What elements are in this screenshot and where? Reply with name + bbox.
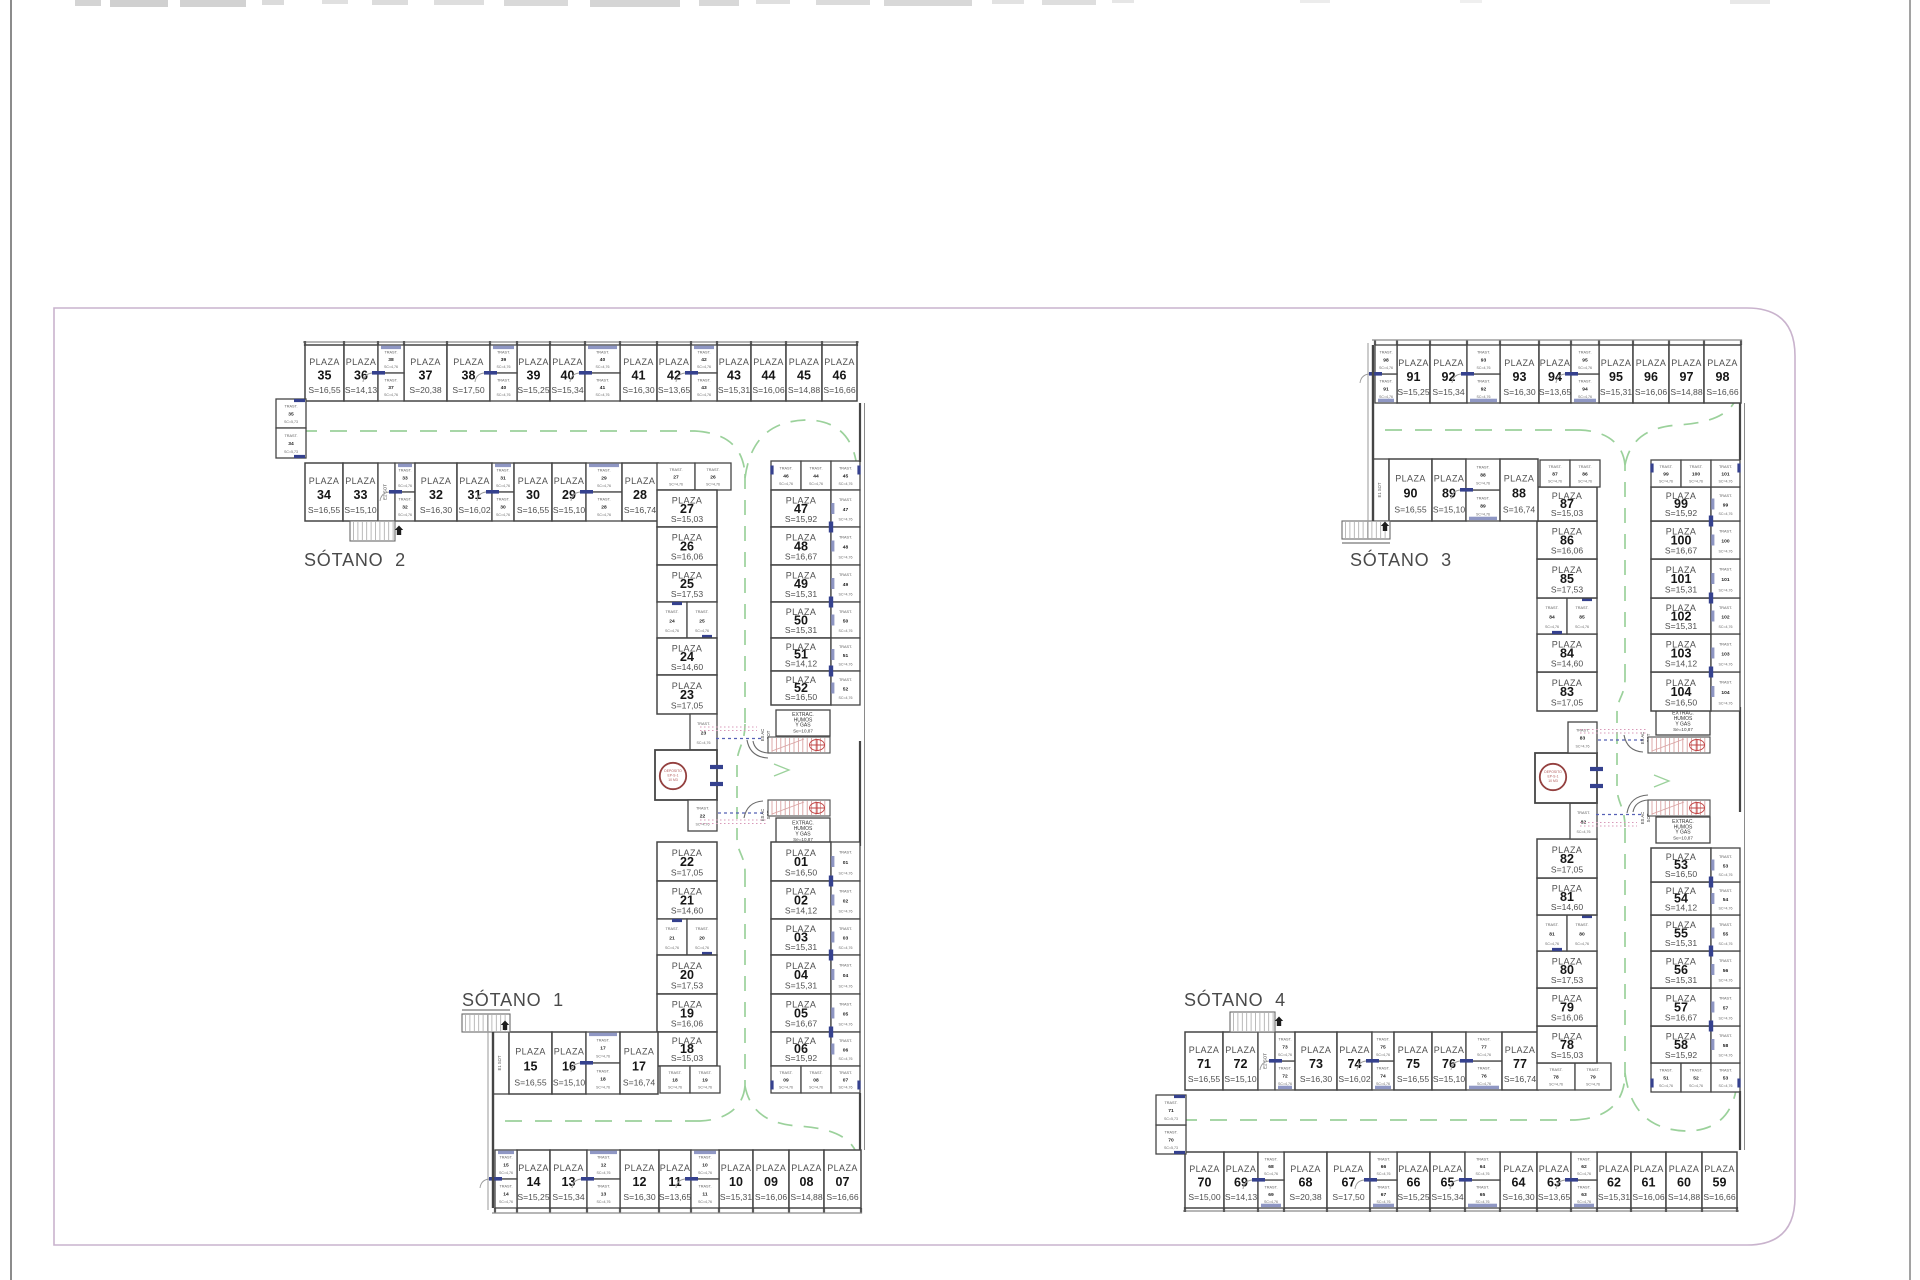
svg-text:TRAST.: TRAST. bbox=[1719, 606, 1732, 610]
svg-text:S=14,12: S=14,12 bbox=[1665, 659, 1697, 669]
svg-text:29: 29 bbox=[601, 476, 607, 482]
svg-text:PLAZA: PLAZA bbox=[1433, 358, 1464, 368]
svg-text:64: 64 bbox=[1480, 1164, 1486, 1170]
svg-text:PLAZA: PLAZA bbox=[824, 357, 855, 367]
svg-text:PLAZA: PLAZA bbox=[1704, 1164, 1735, 1174]
svg-text:SC=4,76: SC=4,76 bbox=[1376, 1200, 1390, 1204]
svg-text:38: 38 bbox=[388, 357, 394, 363]
svg-text:TRAST.: TRAST. bbox=[1719, 959, 1732, 963]
svg-text:S=16,66: S=16,66 bbox=[1703, 1192, 1735, 1202]
svg-text:PLAZA: PLAZA bbox=[515, 1046, 546, 1056]
svg-text:TRAST.: TRAST. bbox=[1575, 923, 1588, 927]
svg-text:TRAST.: TRAST. bbox=[384, 378, 397, 382]
svg-text:88: 88 bbox=[1512, 486, 1526, 500]
svg-text:13: 13 bbox=[601, 1192, 607, 1198]
svg-text:TRAST.: TRAST. bbox=[1719, 1034, 1732, 1038]
svg-text:44: 44 bbox=[813, 474, 819, 480]
svg-text:TRAST.: TRAST. bbox=[1719, 855, 1732, 859]
svg-text:S=16,50: S=16,50 bbox=[1665, 869, 1697, 879]
svg-text:PLAZA: PLAZA bbox=[1707, 358, 1738, 368]
svg-text:TRAST.: TRAST. bbox=[1578, 351, 1591, 355]
svg-text:86: 86 bbox=[1582, 471, 1588, 477]
svg-text:49: 49 bbox=[843, 582, 849, 588]
svg-text:S=14,12: S=14,12 bbox=[1665, 902, 1697, 912]
svg-text:S=16,30: S=16,30 bbox=[622, 385, 654, 395]
svg-text:PLAZA: PLAZA bbox=[309, 476, 340, 486]
svg-text:TRAST.: TRAST. bbox=[398, 469, 411, 473]
svg-text:S=16,06: S=16,06 bbox=[1551, 1013, 1583, 1023]
svg-text:TRAST.: TRAST. bbox=[1719, 1069, 1732, 1073]
svg-text:S=15,31: S=15,31 bbox=[1665, 938, 1697, 948]
svg-text:SC=4,76: SC=4,76 bbox=[838, 946, 852, 950]
svg-text:SC=4,76: SC=4,76 bbox=[665, 629, 679, 633]
svg-text:S=15,31: S=15,31 bbox=[1598, 1192, 1630, 1202]
svg-text:S=15,34: S=15,34 bbox=[1431, 1192, 1463, 1202]
svg-text:PLAZA: PLAZA bbox=[346, 357, 377, 367]
svg-text:S=15,25: S=15,25 bbox=[517, 1192, 549, 1202]
svg-text:SC=4,76: SC=4,76 bbox=[1718, 588, 1732, 592]
svg-text:PLAZA: PLAZA bbox=[1669, 1164, 1700, 1174]
svg-text:S=16,30: S=16,30 bbox=[623, 1192, 655, 1202]
svg-text:S=14,60: S=14,60 bbox=[671, 906, 703, 916]
svg-text:SC=4,76: SC=4,76 bbox=[1578, 479, 1592, 483]
svg-text:63: 63 bbox=[1581, 1192, 1587, 1198]
svg-text:TRAST.: TRAST. bbox=[596, 378, 609, 382]
svg-text:TRAST.: TRAST. bbox=[384, 350, 397, 354]
svg-text:E1 SOT: E1 SOT bbox=[1377, 482, 1382, 497]
svg-text:25: 25 bbox=[699, 619, 705, 625]
svg-text:PLAZA: PLAZA bbox=[1339, 1045, 1370, 1055]
svg-text:103: 103 bbox=[1721, 652, 1729, 658]
svg-text:SC=4,76: SC=4,76 bbox=[1475, 1200, 1489, 1204]
svg-text:SC=4,76: SC=4,76 bbox=[1549, 1082, 1563, 1086]
svg-text:18: 18 bbox=[672, 1077, 678, 1083]
svg-text:SC=4,76: SC=4,76 bbox=[1379, 395, 1393, 399]
svg-text:10: 10 bbox=[702, 1163, 708, 1169]
svg-text:SC=4,76: SC=4,76 bbox=[1575, 745, 1589, 749]
svg-text:S=15,31: S=15,31 bbox=[785, 981, 817, 991]
svg-text:SC=4,76: SC=4,76 bbox=[838, 482, 852, 486]
svg-text:09: 09 bbox=[783, 1077, 789, 1083]
svg-text:98: 98 bbox=[1383, 358, 1389, 364]
svg-text:S=16,06: S=16,06 bbox=[755, 1192, 787, 1202]
svg-text:32: 32 bbox=[429, 488, 443, 502]
svg-text:PLAZA: PLAZA bbox=[827, 1163, 858, 1173]
svg-text:S=16,30: S=16,30 bbox=[1503, 387, 1535, 397]
svg-text:TRAST.: TRAST. bbox=[1719, 996, 1732, 1000]
svg-text:TRAST.: TRAST. bbox=[496, 498, 509, 502]
svg-text:07: 07 bbox=[843, 1077, 849, 1083]
svg-text:S=16,74: S=16,74 bbox=[1503, 504, 1535, 514]
svg-text:PLAZA: PLAZA bbox=[554, 1046, 585, 1056]
svg-text:SC=4,76: SC=4,76 bbox=[596, 1200, 610, 1204]
svg-text:SC=4,76: SC=4,76 bbox=[398, 513, 412, 517]
svg-text:PLAZA: PLAZA bbox=[719, 357, 750, 367]
svg-text:52: 52 bbox=[1693, 1076, 1699, 1082]
svg-text:TRAST.: TRAST. bbox=[697, 378, 710, 382]
svg-text:S=16,55: S=16,55 bbox=[1188, 1074, 1220, 1084]
svg-text:SC=4,76: SC=4,76 bbox=[838, 662, 852, 666]
svg-text:S=16,06: S=16,06 bbox=[671, 1019, 703, 1029]
svg-text:93: 93 bbox=[1513, 370, 1527, 384]
svg-text:18: 18 bbox=[600, 1077, 606, 1083]
svg-text:TRAST.: TRAST. bbox=[1477, 1038, 1490, 1042]
svg-text:TRAST.: TRAST. bbox=[695, 610, 708, 614]
svg-text:71: 71 bbox=[1168, 1108, 1174, 1114]
svg-text:SC=4,76: SC=4,76 bbox=[697, 365, 711, 369]
svg-text:100: 100 bbox=[1721, 539, 1729, 545]
svg-text:SC=5,73: SC=5,73 bbox=[1164, 1117, 1178, 1121]
svg-text:SÓTANO 3: SÓTANO 3 bbox=[1350, 549, 1452, 570]
svg-text:E1 SOT: E1 SOT bbox=[497, 1055, 502, 1070]
svg-text:TRAST.: TRAST. bbox=[1719, 923, 1732, 927]
svg-text:PLAZA: PLAZA bbox=[1398, 358, 1429, 368]
svg-text:S=17,05: S=17,05 bbox=[1551, 698, 1583, 708]
svg-text:TRAST.: TRAST. bbox=[1586, 1068, 1599, 1072]
svg-text:TRAST.: TRAST. bbox=[1477, 351, 1490, 355]
svg-text:TRAST.: TRAST. bbox=[1719, 494, 1732, 498]
svg-text:TRAST.: TRAST. bbox=[839, 498, 852, 502]
svg-text:SC=5,73: SC=5,73 bbox=[1164, 1146, 1178, 1150]
svg-text:TRAST.: TRAST. bbox=[1264, 1157, 1277, 1161]
svg-text:SC=4,76: SC=4,76 bbox=[1577, 1200, 1591, 1204]
svg-text:S=15,31: S=15,31 bbox=[1665, 621, 1697, 631]
svg-text:S=16,06: S=16,06 bbox=[1632, 1192, 1664, 1202]
svg-text:34: 34 bbox=[288, 441, 294, 447]
svg-text:95: 95 bbox=[1582, 358, 1588, 364]
svg-text:TRAST.: TRAST. bbox=[284, 434, 297, 438]
svg-text:TRAST.: TRAST. bbox=[1264, 1185, 1277, 1189]
svg-text:37: 37 bbox=[388, 385, 394, 391]
svg-text:SC=4,76: SC=4,76 bbox=[706, 482, 720, 486]
svg-text:PLAZA: PLAZA bbox=[721, 1163, 752, 1173]
svg-text:S=16,74: S=16,74 bbox=[623, 1077, 655, 1087]
svg-text:TRAST.: TRAST. bbox=[1379, 351, 1392, 355]
svg-text:SC=4,76: SC=4,76 bbox=[1718, 625, 1732, 629]
svg-text:82: 82 bbox=[1581, 820, 1587, 826]
svg-text:TRAST.: TRAST. bbox=[839, 678, 852, 682]
svg-text:S=13,65: S=13,65 bbox=[659, 1192, 691, 1202]
svg-text:95: 95 bbox=[1609, 370, 1623, 384]
svg-text:85: 85 bbox=[1579, 615, 1585, 621]
svg-text:S=15,10: S=15,10 bbox=[1224, 1074, 1256, 1084]
svg-text:TRAST.: TRAST. bbox=[596, 1069, 609, 1073]
svg-text:S=17,05: S=17,05 bbox=[671, 868, 703, 878]
svg-text:S=16,06: S=16,06 bbox=[1635, 387, 1667, 397]
svg-text:TRAST.: TRAST. bbox=[1476, 1157, 1489, 1161]
svg-text:50: 50 bbox=[843, 619, 849, 625]
svg-text:06: 06 bbox=[843, 1047, 849, 1053]
svg-text:PLAZA: PLAZA bbox=[554, 476, 585, 486]
svg-text:101: 101 bbox=[1721, 577, 1729, 583]
svg-text:72: 72 bbox=[1234, 1057, 1248, 1071]
svg-text:TRAST.: TRAST. bbox=[669, 468, 682, 472]
svg-text:TRAST.: TRAST. bbox=[779, 467, 792, 471]
svg-text:TRAST.: TRAST. bbox=[839, 573, 852, 577]
svg-text:PLAZA: PLAZA bbox=[1333, 1164, 1364, 1174]
svg-text:TRAST.: TRAST. bbox=[1278, 1067, 1291, 1071]
svg-text:SC=4,76: SC=4,76 bbox=[698, 1171, 712, 1175]
svg-text:TRAST.: TRAST. bbox=[1476, 465, 1489, 469]
svg-text:S=15,03: S=15,03 bbox=[1551, 1050, 1583, 1060]
svg-text:TRAST.: TRAST. bbox=[696, 806, 709, 810]
svg-text:S=15,10: S=15,10 bbox=[1433, 504, 1465, 514]
svg-text:99: 99 bbox=[1663, 471, 1669, 477]
svg-text:S=16,55: S=16,55 bbox=[1394, 504, 1426, 514]
svg-text:28: 28 bbox=[601, 505, 607, 511]
svg-text:S=15,34: S=15,34 bbox=[551, 385, 583, 395]
svg-text:SC=4,76: SC=4,76 bbox=[595, 393, 609, 397]
svg-text:S=20,38: S=20,38 bbox=[409, 385, 441, 395]
svg-text:41: 41 bbox=[632, 369, 646, 383]
svg-text:PLAZA: PLAZA bbox=[459, 476, 490, 486]
svg-text:67: 67 bbox=[1342, 1176, 1356, 1190]
svg-text:ES AC: ES AC bbox=[1640, 732, 1645, 744]
svg-text:PLAZA: PLAZA bbox=[1503, 1164, 1534, 1174]
svg-text:SC=4,76: SC=4,76 bbox=[1718, 906, 1732, 910]
svg-text:16: 16 bbox=[562, 1059, 576, 1073]
svg-text:S=16,55: S=16,55 bbox=[308, 385, 340, 395]
svg-text:31: 31 bbox=[500, 476, 506, 482]
svg-text:TRAST.: TRAST. bbox=[1379, 380, 1392, 384]
svg-text:SC=4,76: SC=4,76 bbox=[1477, 1082, 1491, 1086]
svg-text:79: 79 bbox=[1590, 1074, 1596, 1080]
svg-text:S=16,06: S=16,06 bbox=[671, 552, 703, 562]
svg-text:75: 75 bbox=[1406, 1057, 1420, 1071]
svg-text:S=15,31: S=15,31 bbox=[785, 942, 817, 952]
svg-text:SC=4,76: SC=4,76 bbox=[1718, 873, 1732, 877]
svg-text:TRAST.: TRAST. bbox=[1577, 1157, 1590, 1161]
svg-text:SC=4,76: SC=4,76 bbox=[698, 1085, 712, 1089]
svg-text:94: 94 bbox=[1582, 387, 1588, 393]
svg-text:PLAZA: PLAZA bbox=[345, 476, 376, 486]
svg-text:SC=4,76: SC=4,76 bbox=[838, 1085, 852, 1089]
svg-text:35: 35 bbox=[318, 369, 332, 383]
svg-text:PLAZA: PLAZA bbox=[660, 1163, 691, 1173]
svg-text:73: 73 bbox=[1282, 1045, 1288, 1051]
svg-text:SC=4,76: SC=4,76 bbox=[1718, 512, 1732, 516]
svg-text:TRAST.: TRAST. bbox=[839, 645, 852, 649]
svg-text:TRAST.: TRAST. bbox=[597, 1185, 610, 1189]
svg-text:TRAST.: TRAST. bbox=[1164, 1131, 1177, 1135]
svg-text:S=16,74: S=16,74 bbox=[1504, 1074, 1536, 1084]
svg-text:SC=4,76: SC=4,76 bbox=[1576, 830, 1590, 834]
svg-text:PLAZA: PLAZA bbox=[518, 476, 549, 486]
svg-text:44: 44 bbox=[762, 369, 776, 383]
svg-text:SC=4,76: SC=4,76 bbox=[398, 484, 412, 488]
svg-text:PLAZA: PLAZA bbox=[789, 357, 820, 367]
svg-text:05: 05 bbox=[843, 1012, 849, 1018]
svg-text:S=17,50: S=17,50 bbox=[1332, 1192, 1364, 1202]
svg-text:35: 35 bbox=[288, 412, 294, 418]
svg-text:S=15,31: S=15,31 bbox=[718, 385, 750, 395]
svg-text:S=15,00: S=15,00 bbox=[1188, 1192, 1220, 1202]
svg-text:68: 68 bbox=[1299, 1176, 1313, 1190]
svg-text:DEPOSITO: DEPOSITO bbox=[664, 769, 682, 773]
svg-text:83: 83 bbox=[1580, 736, 1586, 742]
svg-text:S=15,92: S=15,92 bbox=[785, 1053, 817, 1063]
svg-text:SC=4,76: SC=4,76 bbox=[1718, 701, 1732, 705]
svg-text:PLAZA: PLAZA bbox=[625, 476, 656, 486]
svg-text:SC=4,76: SC=4,76 bbox=[596, 1086, 610, 1090]
svg-text:PLAZA: PLAZA bbox=[1395, 473, 1426, 483]
svg-text:TRAST.: TRAST. bbox=[597, 469, 610, 473]
svg-text:TRAST.: TRAST. bbox=[839, 1071, 852, 1075]
svg-text:SC=4,76: SC=4,76 bbox=[838, 1023, 852, 1027]
svg-text:S=14,60: S=14,60 bbox=[671, 662, 703, 672]
svg-text:S=14,88: S=14,88 bbox=[788, 385, 820, 395]
svg-text:48: 48 bbox=[843, 545, 849, 551]
svg-text:TRAST.: TRAST. bbox=[1278, 1038, 1291, 1042]
svg-text:S=16,06: S=16,06 bbox=[1551, 546, 1583, 556]
svg-text:S=15,25: S=15,25 bbox=[1397, 387, 1429, 397]
svg-text:27: 27 bbox=[673, 474, 679, 480]
svg-text:S=15,10: S=15,10 bbox=[1433, 1074, 1465, 1084]
svg-text:54: 54 bbox=[1723, 897, 1729, 903]
svg-text:S=17,50: S=17,50 bbox=[452, 385, 484, 395]
svg-text:SC=4,76: SC=4,76 bbox=[838, 556, 852, 560]
svg-text:S=16,50: S=16,50 bbox=[785, 868, 817, 878]
svg-text:S=16,66: S=16,66 bbox=[823, 385, 855, 395]
svg-text:26: 26 bbox=[710, 474, 716, 480]
svg-text:S=16,55: S=16,55 bbox=[514, 1077, 546, 1087]
svg-text:PLAZA: PLAZA bbox=[1599, 1164, 1630, 1174]
svg-text:TRAST.: TRAST. bbox=[497, 378, 510, 382]
svg-text:S=16,02: S=16,02 bbox=[1338, 1074, 1370, 1084]
svg-text:PLAZA: PLAZA bbox=[659, 357, 690, 367]
svg-text:SC=4,76: SC=4,76 bbox=[779, 1085, 793, 1089]
svg-text:SC=4,76: SC=4,76 bbox=[1578, 395, 1592, 399]
svg-text:TRAST.: TRAST. bbox=[1578, 465, 1591, 469]
svg-text:Se=10,87: Se=10,87 bbox=[1673, 727, 1693, 732]
svg-text:TRAST.: TRAST. bbox=[697, 350, 710, 354]
svg-text:SC=4,76: SC=4,76 bbox=[1278, 1053, 1292, 1057]
svg-text:SC=4,76: SC=4,76 bbox=[809, 1085, 823, 1089]
svg-text:PLAZA: PLAZA bbox=[1434, 1045, 1465, 1055]
svg-text:TRAST.: TRAST. bbox=[1476, 1185, 1489, 1189]
svg-text:TRAST.: TRAST. bbox=[1549, 1068, 1562, 1072]
svg-text:S=17,53: S=17,53 bbox=[1551, 585, 1583, 595]
svg-text:S=14,88: S=14,88 bbox=[1670, 387, 1702, 397]
svg-text:TRAST.: TRAST. bbox=[1577, 1185, 1590, 1189]
svg-text:SC=4,76: SC=4,76 bbox=[597, 513, 611, 517]
svg-text:S=15,92: S=15,92 bbox=[1665, 1050, 1697, 1060]
svg-text:74: 74 bbox=[1380, 1074, 1386, 1080]
svg-text:10 M3: 10 M3 bbox=[668, 778, 678, 782]
svg-text:SC=4,76: SC=4,76 bbox=[1545, 942, 1559, 946]
svg-text:SC=4,76: SC=4,76 bbox=[1718, 1054, 1732, 1058]
svg-text:S=17,05: S=17,05 bbox=[671, 701, 703, 711]
svg-text:PLAZA: PLAZA bbox=[1633, 1164, 1664, 1174]
svg-text:PLAZA: PLAZA bbox=[1540, 358, 1571, 368]
svg-text:93: 93 bbox=[1481, 358, 1487, 364]
svg-text:39: 39 bbox=[527, 369, 541, 383]
svg-text:SC=4,76: SC=4,76 bbox=[1264, 1172, 1278, 1176]
svg-text:PLAZA: PLAZA bbox=[624, 1046, 655, 1056]
svg-text:TRAST.: TRAST. bbox=[1575, 606, 1588, 610]
svg-text:PLAZA: PLAZA bbox=[553, 1163, 584, 1173]
svg-text:SC=4,76: SC=4,76 bbox=[1718, 1084, 1732, 1088]
svg-text:S=16,55: S=16,55 bbox=[308, 505, 340, 515]
svg-text:PLAZA: PLAZA bbox=[518, 357, 549, 367]
svg-text:TRAST.: TRAST. bbox=[698, 1156, 711, 1160]
svg-text:89: 89 bbox=[1480, 504, 1486, 510]
svg-text:S=16,50: S=16,50 bbox=[1665, 698, 1697, 708]
svg-text:TRAST.: TRAST. bbox=[596, 1038, 609, 1042]
svg-text:SC=4,76: SC=4,76 bbox=[809, 482, 823, 486]
svg-text:04: 04 bbox=[843, 973, 849, 979]
svg-text:PLAZA: PLAZA bbox=[410, 357, 441, 367]
svg-text:ES AC: ES AC bbox=[1640, 812, 1645, 824]
svg-text:S=14,60: S=14,60 bbox=[1551, 659, 1583, 669]
svg-text:TRAST.: TRAST. bbox=[1376, 1038, 1389, 1042]
svg-text:EP-S-1: EP-S-1 bbox=[668, 774, 679, 778]
svg-text:TRAST.: TRAST. bbox=[499, 1185, 512, 1189]
svg-text:S=13,65: S=13,65 bbox=[658, 385, 690, 395]
svg-text:ES AC: ES AC bbox=[760, 729, 765, 741]
svg-text:SC=4,76: SC=4,76 bbox=[838, 629, 852, 633]
svg-text:S=16,67: S=16,67 bbox=[785, 552, 817, 562]
svg-text:S=16,66: S=16,66 bbox=[826, 1192, 858, 1202]
svg-text:20: 20 bbox=[699, 936, 705, 942]
svg-text:PLAZA: PLAZA bbox=[453, 357, 484, 367]
svg-text:S=14,88: S=14,88 bbox=[1668, 1192, 1700, 1202]
svg-text:SC=4,76: SC=4,76 bbox=[669, 482, 683, 486]
svg-text:PLAZA: PLAZA bbox=[791, 1163, 822, 1173]
svg-text:TRAST.: TRAST. bbox=[698, 1071, 711, 1075]
svg-text:TRAST.: TRAST. bbox=[839, 610, 852, 614]
svg-text:TRAST.: TRAST. bbox=[697, 722, 710, 726]
svg-text:65: 65 bbox=[1480, 1192, 1486, 1198]
svg-text:51: 51 bbox=[843, 653, 849, 659]
svg-text:17: 17 bbox=[632, 1059, 646, 1073]
svg-text:SC=4,76: SC=4,76 bbox=[838, 910, 852, 914]
svg-text:41: 41 bbox=[600, 385, 606, 391]
svg-text:56: 56 bbox=[1723, 968, 1729, 974]
svg-text:TRAST.: TRAST. bbox=[809, 1071, 822, 1075]
svg-text:S=16,67: S=16,67 bbox=[1665, 1013, 1697, 1023]
svg-text:40: 40 bbox=[501, 385, 507, 391]
svg-text:S=16,67: S=16,67 bbox=[1665, 546, 1697, 556]
svg-text:69: 69 bbox=[1268, 1192, 1274, 1198]
svg-text:TRAST.: TRAST. bbox=[665, 927, 678, 931]
svg-text:TRAST.: TRAST. bbox=[1376, 1067, 1389, 1071]
svg-text:40: 40 bbox=[600, 357, 606, 363]
svg-text:ES AC: ES AC bbox=[760, 809, 765, 821]
svg-text:SC=4,76: SC=4,76 bbox=[496, 513, 510, 517]
svg-text:SC=5,73: SC=5,73 bbox=[284, 420, 298, 424]
svg-text:12: 12 bbox=[633, 1175, 647, 1189]
svg-text:S=16,30: S=16,30 bbox=[1502, 1192, 1534, 1202]
svg-text:PLAZA: PLAZA bbox=[1226, 1164, 1257, 1174]
svg-text:TRAST.: TRAST. bbox=[839, 889, 852, 893]
svg-text:SC=4,76: SC=4,76 bbox=[1718, 979, 1732, 983]
svg-text:TRAST.: TRAST. bbox=[597, 1156, 610, 1160]
svg-text:96: 96 bbox=[1644, 370, 1658, 384]
svg-text:S=15,34: S=15,34 bbox=[552, 1192, 584, 1202]
svg-text:57: 57 bbox=[1723, 1006, 1729, 1012]
svg-text:59: 59 bbox=[1713, 1176, 1727, 1190]
svg-text:SC=4,76: SC=4,76 bbox=[1689, 1084, 1703, 1088]
svg-text:SC=4,76: SC=4,76 bbox=[1718, 550, 1732, 554]
svg-text:33: 33 bbox=[402, 476, 408, 482]
svg-text:08: 08 bbox=[800, 1175, 814, 1189]
svg-text:39: 39 bbox=[501, 357, 507, 363]
svg-text:SC=4,76: SC=4,76 bbox=[695, 629, 709, 633]
svg-text:30: 30 bbox=[526, 488, 540, 502]
svg-text:S=16,50: S=16,50 bbox=[785, 692, 817, 702]
svg-text:SC=4,76: SC=4,76 bbox=[1477, 1053, 1491, 1057]
